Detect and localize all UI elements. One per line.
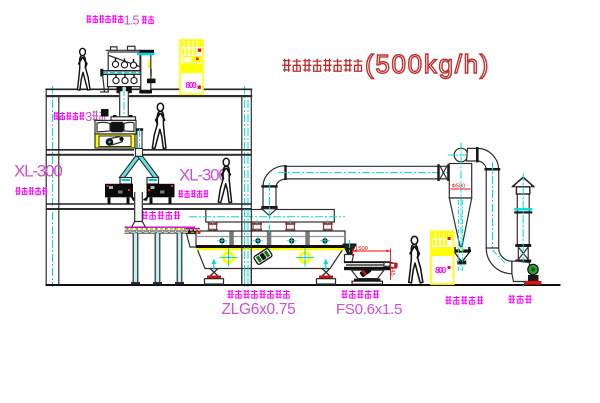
svg-text:ZLG6x0.75: ZLG6x0.75: [222, 301, 296, 318]
svg-text:1.5: 1.5: [124, 13, 140, 28]
svg-text:XL-300: XL-300: [179, 166, 227, 185]
svg-text:3: 3: [85, 109, 92, 124]
svg-text:XL-300: XL-300: [14, 162, 62, 181]
svg-text:(500kg/h): (500kg/h): [365, 49, 490, 79]
svg-text:FS0.6x1.5: FS0.6x1.5: [336, 301, 402, 318]
svg-text:345: 345: [389, 266, 395, 276]
